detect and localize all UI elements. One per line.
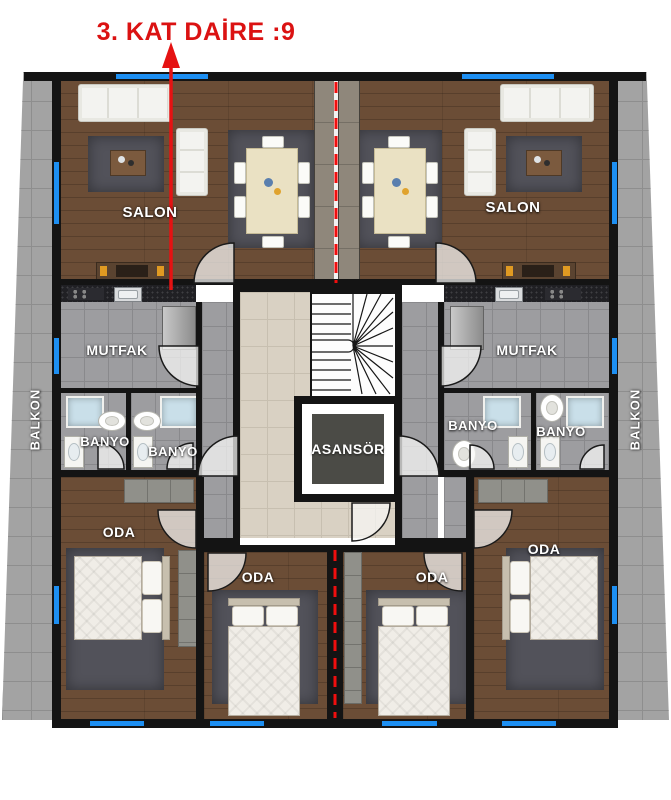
decor-plate [118,156,125,163]
corridor-left [202,302,233,538]
wardrobe [478,479,548,503]
tv-unit-knob [506,266,513,276]
partition-wall-right [338,80,360,279]
chair [388,236,410,248]
pillow [232,606,264,626]
wardrobe [178,550,198,647]
wall [196,477,204,722]
chair [362,162,374,184]
tv-unit-knob [157,266,164,276]
kitchen-sink [495,287,523,302]
window-segment [612,162,617,224]
bed [530,556,598,640]
window-segment [116,74,208,79]
room-label-salon-left: SALON [100,204,200,221]
wall [340,545,466,552]
decor-plate [264,178,273,187]
headboard [162,556,170,640]
tv-screen [116,265,148,277]
wall [438,302,444,477]
chair [426,196,438,218]
pillow [142,561,162,595]
sofa [176,128,208,196]
room-label-balkon-right: BALKON [628,360,643,480]
toilet [133,411,161,431]
page-title: 3. KAT DAİRE :9 [96,18,296,47]
chair [234,162,246,184]
elevator-label: ASANSÖR [311,441,385,457]
wall [466,477,474,722]
wall [327,545,343,722]
chair [362,196,374,218]
sofa [78,84,172,122]
wall [444,470,610,477]
pillow [382,606,414,626]
window-segment [462,74,554,79]
pillow [142,599,162,633]
room-label-oda-outer-left: ODA [69,524,169,540]
kitchen-sink [114,287,142,302]
pillow [510,599,530,633]
room-label-oda-center-right: ODA [382,569,482,585]
tv-unit-knob [100,266,107,276]
chair [426,162,438,184]
toilet [540,394,564,422]
decor-plate [392,178,401,187]
chair [298,162,310,184]
bed [228,626,300,716]
dining-table [246,148,298,234]
window-segment [210,721,264,726]
elevator: ASANSÖR [294,396,402,502]
room-label-mutfak-left: MUTFAK [67,342,167,358]
window-segment [382,721,437,726]
window-segment [612,586,617,624]
headboard [378,598,450,606]
kitchen-counter [444,285,610,302]
wardrobe [124,479,194,503]
room-label-salon-right: SALON [463,199,563,216]
corridor-right-lower [444,477,466,538]
bath-sink [508,436,528,468]
room-label-mutfak-right: MUTFAK [477,342,577,358]
stove [545,288,581,300]
window-segment [54,338,59,374]
sofa [464,128,496,196]
wall [233,292,240,545]
room-label-oda-center-left: ODA [208,569,308,585]
decor-plate [534,156,541,163]
room-label-banyo-left-b: BANYO [123,444,223,459]
window-segment [612,338,617,374]
tv-unit-knob [563,266,570,276]
wall [204,545,330,552]
tv-screen [522,265,554,277]
decor-plate [128,160,134,166]
pillow [266,606,298,626]
room-label-balkon-left: BALKON [28,360,43,480]
chair [262,136,284,148]
chair [262,236,284,248]
dining-table [374,148,426,234]
chair [298,196,310,218]
decor-plate [544,160,550,166]
headboard [228,598,300,606]
wall [395,538,474,545]
window-segment [54,162,59,224]
bath-sink [540,436,560,468]
wall [444,388,610,393]
chair [234,196,246,218]
stove [68,288,104,300]
wardrobe [344,552,362,704]
floor-plan: 3. KAT DAİRE :9 [0,0,671,800]
headboard [502,556,510,640]
room-label-banyo-right-b: BANYO [511,424,611,439]
room-label-oda-outer-right: ODA [494,541,594,557]
shower [160,396,198,428]
sofa [500,84,594,122]
decor-plate [274,188,281,195]
window-segment [90,721,144,726]
room-label-banyo-right-a: BANYO [423,418,523,433]
toilet [98,411,126,431]
pillow [416,606,448,626]
elevator-shaft: ASANSÖR [302,404,394,494]
staircase [310,292,399,402]
partition-wall-left [314,80,336,279]
wall [233,285,402,292]
wall [60,470,196,477]
bed [74,556,142,640]
pillow [510,561,530,595]
chair [388,136,410,148]
window-segment [54,586,59,624]
wall [395,292,402,545]
decor-plate [402,188,409,195]
toilet [452,440,476,468]
bed [378,626,450,716]
fridge [162,306,196,350]
window-segment [502,721,556,726]
